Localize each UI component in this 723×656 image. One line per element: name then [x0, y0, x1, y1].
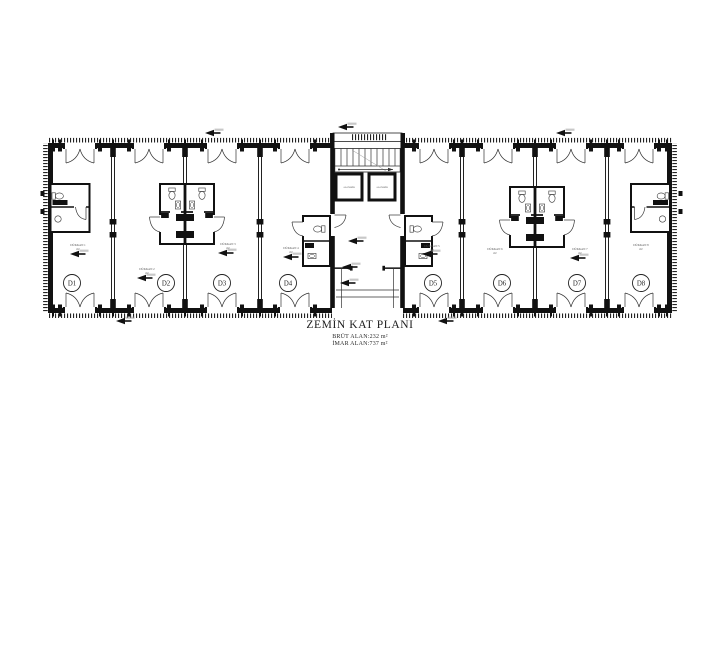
room-area: m²	[289, 250, 292, 254]
double-door-d4-bottom	[278, 293, 312, 313]
party-wall-d1-d2	[110, 148, 117, 308]
plan-title: ZEMİN KAT PLANI	[306, 317, 413, 331]
double-door-d1-top	[63, 143, 97, 163]
unit-badge-d7: D7	[569, 275, 586, 292]
room-area: m²	[76, 247, 79, 251]
unit-badge-d8: D8	[633, 275, 650, 292]
elevator-2-label: ASANSÖR	[376, 186, 388, 189]
unit-badge-d2: D2	[158, 275, 175, 292]
zoning-area-note: İMAR ALAN:737 m²	[332, 340, 387, 347]
gross-area-note: BRÜT ALAN:232 m²	[332, 333, 388, 340]
unit-id: D4	[284, 280, 293, 287]
unit-id: D7	[573, 280, 582, 287]
level-marker-icon	[556, 129, 575, 137]
bath-d8	[631, 184, 670, 232]
double-door-d7-top	[554, 143, 588, 163]
elevator-1-label: ASANSÖR	[343, 186, 355, 189]
unit-badge-d5: D5	[425, 275, 442, 292]
unit-id: D8	[637, 280, 646, 287]
unit-id: D1	[68, 280, 76, 287]
core-canopy	[330, 133, 405, 148]
bath-d5	[405, 216, 443, 266]
entrance-vestibule	[335, 266, 401, 308]
party-wall-d5-d6	[459, 148, 466, 308]
level-marker-icon	[338, 123, 357, 131]
room-area: m²	[145, 271, 148, 275]
double-door-d7-bottom	[554, 293, 588, 313]
level-marker-icon	[348, 237, 367, 245]
level-marker-icon	[340, 279, 359, 287]
floor-plan-canvas: ASANSÖR ASANSÖR	[0, 0, 723, 656]
unit-id: D2	[162, 280, 171, 287]
bath-d1	[51, 184, 90, 232]
facade-doors-bottom	[63, 293, 656, 313]
room-area: m²	[578, 251, 581, 255]
unit-id: D5	[429, 280, 438, 287]
double-door-d2-bottom	[132, 293, 166, 313]
core: ASANSÖR ASANSÖR	[330, 148, 406, 308]
double-door-d5-bottom	[417, 293, 451, 313]
room-area: m²	[493, 251, 496, 255]
double-door-d8-top	[622, 143, 656, 163]
double-door-d2-top	[132, 143, 166, 163]
level-marker-icon	[205, 129, 224, 137]
double-door-d1-bottom	[63, 293, 97, 313]
unit-id-badges: D1 D2 D3 D4 D5 D6 D7 D8	[64, 275, 650, 292]
room-area: m²	[639, 247, 642, 251]
unit-id: D6	[498, 280, 507, 287]
double-door-d5-top	[417, 143, 451, 163]
double-door-d4-top	[278, 143, 312, 163]
unit-badge-d3: D3	[214, 275, 231, 292]
bath-d4	[292, 216, 330, 266]
double-door-d3-top	[205, 143, 239, 163]
unit-badge-d1: D1	[64, 275, 81, 292]
double-door-d3-bottom	[205, 293, 239, 313]
unit-badge-d4: D4	[280, 275, 297, 292]
unit-id: D3	[218, 280, 227, 287]
double-door-d6-bottom	[481, 293, 515, 313]
elevator-1: ASANSÖR	[336, 174, 362, 200]
elevator-2: ASANSÖR	[369, 174, 395, 200]
room-area: m²	[226, 246, 229, 250]
unit-badge-d6: D6	[494, 275, 511, 292]
hall-doors	[330, 214, 406, 236]
party-wall-d3-d4	[257, 148, 264, 308]
room-area: m²	[430, 248, 433, 252]
staircase	[335, 149, 400, 173]
bath-cluster-d2-d3	[150, 184, 225, 244]
party-wall-d7-d8	[604, 148, 611, 308]
title-block: ZEMİN KAT PLANI BRÜT ALAN:232 m² İMAR AL…	[306, 317, 413, 347]
double-door-d6-top	[481, 143, 515, 163]
bath-cluster-d6-d7	[500, 187, 575, 247]
page: ASANSÖR ASANSÖR	[0, 0, 723, 656]
double-door-d8-bottom	[622, 293, 656, 313]
